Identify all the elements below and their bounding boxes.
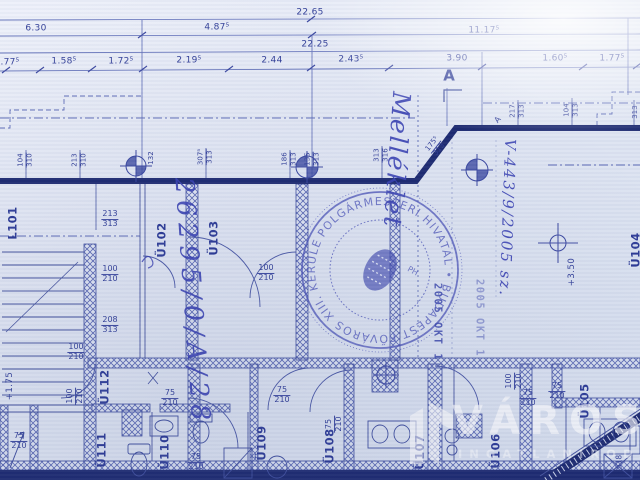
bottom-outer-wall — [0, 470, 640, 480]
scanned-floor-plan-sheet: 22.65 6.30 4.87⁵ 11.17⁵ 22.25 1.77⁵ 1.58… — [0, 0, 640, 480]
room-label-u104: Ü104 — [630, 232, 640, 267]
room-label-u112: Ü112 — [99, 369, 111, 404]
opening-dim: 75210 — [273, 379, 290, 405]
wall-dim: 104310 — [18, 152, 35, 167]
opening-dim: 75210 — [161, 382, 178, 408]
opening-dim: 213313 — [101, 203, 118, 229]
level-marker-lower: +1.75 — [6, 372, 15, 401]
room-label-u103: Ü103 — [208, 220, 220, 255]
watermark-brand: VÁROSI — [452, 398, 640, 444]
opening-dim: 100210 — [101, 258, 118, 284]
wall-dim: 213310 — [72, 152, 89, 167]
room-label-u110: Ü110 — [159, 434, 171, 469]
room-label-u108: Ü108 — [324, 428, 336, 463]
wall-dim: 135313 — [305, 151, 322, 166]
room-label-l101: L101 — [7, 206, 19, 239]
dim-row2-0: 6.30 — [25, 25, 46, 34]
dim-row4-3: 2.19⁵ — [176, 57, 201, 66]
dim-row2-1: 4.87⁵ — [204, 24, 229, 33]
dim-row4-5: 2.43⁵ — [338, 56, 363, 65]
dim-row4-8: 1.77⁵ — [599, 55, 624, 64]
wall-dim: 307⁵313 — [198, 149, 215, 165]
date-stamp: 2005 OKT 1 — [432, 283, 443, 361]
dim-row4-0: 1.77⁵ — [0, 59, 20, 68]
wall-dim: 313 — [632, 105, 640, 118]
dim-row2-2: 11.17⁵ — [468, 27, 499, 36]
dim-row4-6: 3.90 — [446, 55, 467, 64]
opening-dim: 75210 — [10, 425, 27, 451]
opening-dim: 75210 — [187, 446, 204, 472]
opening-dim: 208313 — [101, 309, 118, 335]
dim-overall-mid: 22.25 — [301, 41, 328, 50]
opening-dim: 100210 — [59, 387, 85, 404]
opening-dim: 100210 — [67, 336, 84, 362]
wall-dim: 217313 — [510, 103, 527, 118]
wall-dim: 132 — [148, 151, 156, 164]
dim-row4-2: 1.72⁵ — [108, 58, 133, 67]
watermark-tagline: INGATLANIRODA — [458, 447, 640, 461]
stamp-coat-of-arms — [356, 244, 403, 297]
date-stamp-faint: 2005 OKT 1 — [474, 279, 485, 357]
room-label-u109: Ü109 — [256, 425, 268, 460]
wall-dim: 104313 — [564, 102, 581, 117]
dim-overall-top: 22.65 — [296, 9, 323, 18]
room-label-u111: Ü111 — [96, 432, 108, 467]
dim-row4-7: 1.60⁵ — [542, 55, 567, 64]
stamp-monogram: PH — [406, 264, 420, 277]
wall-dim: 186313 — [282, 151, 299, 166]
dim-row4-1: 1.58⁵ — [51, 58, 76, 67]
section-marker-a: A — [443, 69, 455, 84]
dim-row4-4: 2.44 — [261, 57, 282, 66]
level-marker-upper: +3.50 — [568, 258, 577, 287]
varosi-logo-icon — [408, 400, 454, 464]
handwritten-case-number: V-443/9/2005 sz. — [497, 139, 518, 298]
room-label-u102: Ü102 — [156, 222, 168, 257]
